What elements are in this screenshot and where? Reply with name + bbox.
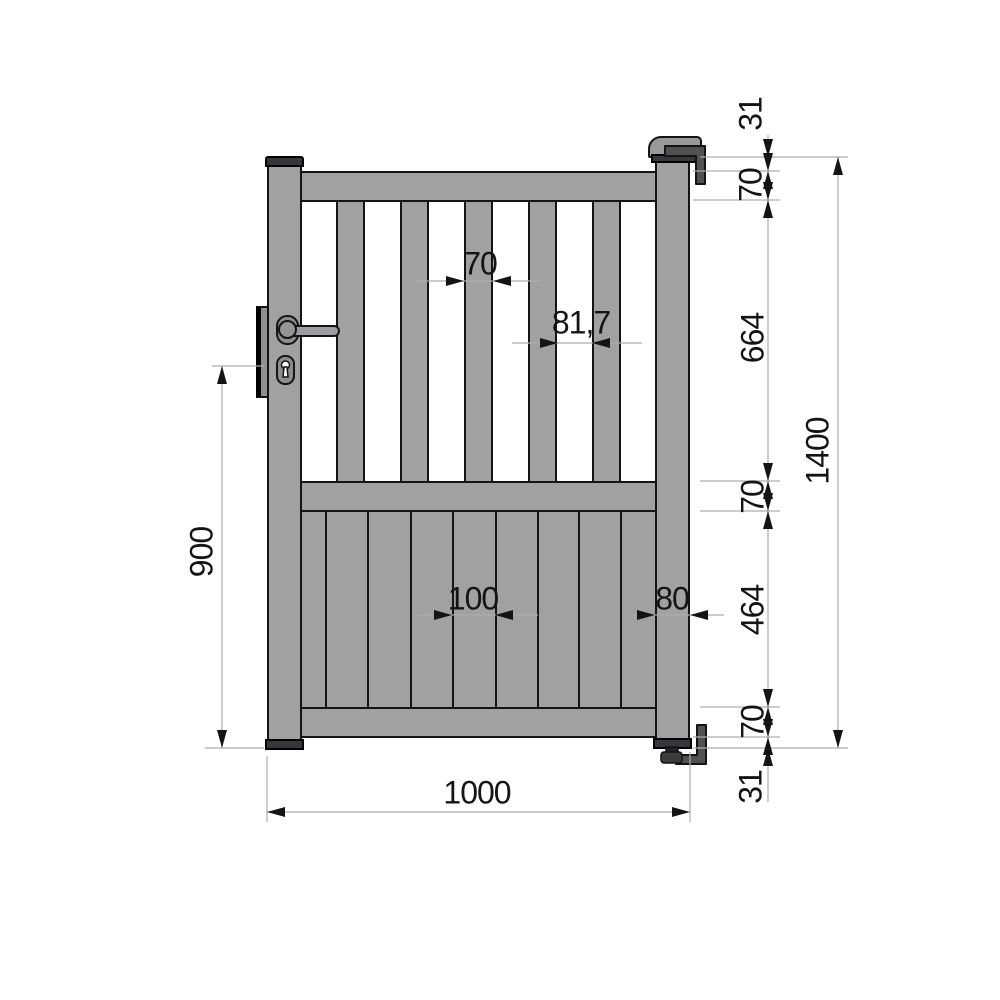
bottom-rail <box>300 707 657 738</box>
dim-middle-rail-label: 70 <box>735 480 772 514</box>
dim-top-rail-label: 70 <box>733 168 770 202</box>
keyhole-icon <box>278 357 293 383</box>
lock-strike-plate <box>256 306 269 398</box>
dim-board-width-label: 100 <box>448 581 498 618</box>
board-seam <box>578 511 580 707</box>
dim-stile-width-label: 80 <box>655 581 689 618</box>
dim-slat-width-label: 70 <box>463 246 497 283</box>
board-seam <box>620 511 622 707</box>
infill-slat <box>336 198 365 483</box>
middle-rail <box>300 481 657 512</box>
dim-top-offset-label: 31 <box>733 97 770 131</box>
dim-handle-height-label: 900 <box>184 527 221 577</box>
board-seam <box>325 511 327 707</box>
post-cap-plate <box>651 154 702 163</box>
board-seam <box>537 511 539 707</box>
infill-slat <box>400 198 429 483</box>
drawing-canvas: 70 81,7 100 80 1000 900 1400 31 70 664 7… <box>0 0 1000 1000</box>
lock-stile <box>267 157 302 750</box>
dim-overall-width-label: 1000 <box>443 775 510 812</box>
foot-plate-left <box>265 739 304 750</box>
dim-slat-gap-label: 81,7 <box>552 305 610 342</box>
dim-overall-height-label: 1400 <box>800 417 837 484</box>
dim-upper-section-label: 664 <box>735 313 772 363</box>
dim-bottom-rail-label: 70 <box>735 705 772 739</box>
stile-cap-left <box>265 156 304 167</box>
keyhole-escutcheon <box>276 355 295 385</box>
board-seam <box>367 511 369 707</box>
hinge-bolt-nut <box>661 752 682 763</box>
handle-hub <box>278 320 297 339</box>
board-seam <box>410 511 412 707</box>
infill-slat <box>464 198 493 483</box>
foot-plate-right <box>653 738 692 749</box>
hinge-stile <box>655 157 690 749</box>
dim-lower-section-label: 464 <box>735 585 772 635</box>
top-rail <box>300 171 657 202</box>
dim-bottom-offset-label: 31 <box>733 770 770 804</box>
